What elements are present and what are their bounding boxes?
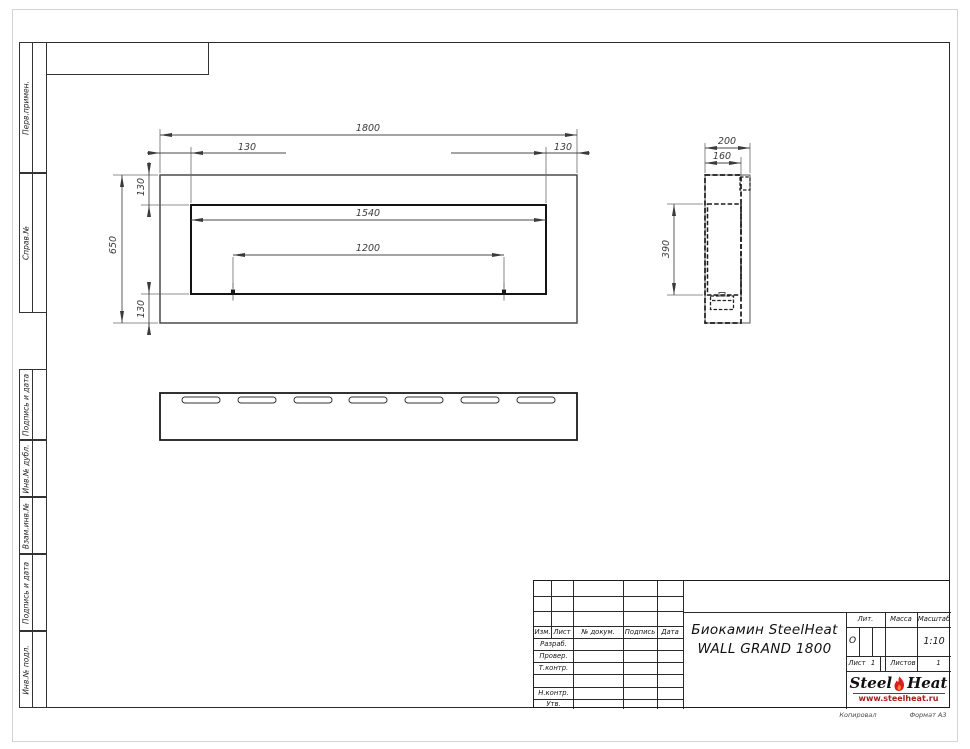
drawing-title-line1: Биокамин SteelHeat [683,621,846,640]
tb-lit-label: Лит. [846,612,885,627]
dim-label-frame-top: 130 [136,178,147,196]
vent-slot [294,397,332,403]
tb-row-utv: Утв. [534,699,573,709]
vent-slot [405,397,443,403]
plan-view [160,393,577,440]
tb-line [534,596,683,597]
dim-label-opening-width: 1540 [356,208,380,219]
dim-label-frame-left: 130 [238,142,256,153]
vent-slot [238,397,276,403]
dim-label-frame-right: 130 [554,142,572,153]
tb-line [534,611,683,612]
tb-sheets-label: Листов [880,656,926,671]
tb-line [872,627,873,656]
tb-header-list: Лист [551,626,573,638]
dim-label-burner-length: 1200 [356,243,380,254]
dimension-lines [122,135,750,334]
dim-label-opening-height: 390 [661,240,672,258]
tb-line [657,581,658,709]
dim-label-front-height: 650 [108,236,119,254]
footer-copy-note: Копировал [828,711,888,719]
logo-url: www.steelheat.ru [859,694,939,704]
vent-slot [517,397,555,403]
flame-icon [893,676,906,692]
tb-line [534,674,683,675]
dim-label-body-depth: 160 [713,151,731,162]
tb-lit-value: О [846,627,859,656]
tb-sheet-label: Лист [846,656,868,671]
footer-format-note: Формат А3 [898,711,958,719]
drawing-title: Биокамин SteelHeat WALL GRAND 1800 [683,612,846,709]
tb-row-razrab: Разраб. [534,638,573,650]
tb-header-docnum: № докум. [573,626,623,638]
tb-sheets-value: 1 [926,656,951,671]
logo-steel-text: Steel [850,676,893,691]
tb-line [623,581,624,709]
logo-heat-text: Heat [907,676,947,691]
side-view [705,175,750,323]
tb-header-izm: Изм. [534,626,551,638]
dim-label-frame-bottom: 130 [136,300,147,318]
tb-header-data: Дата [657,626,683,638]
side-burner-block [711,296,734,310]
title-block: Изм. Лист № докум. Подпись Дата Разраб. … [533,580,950,708]
dim-label-front-width: 1800 [356,123,380,134]
logo-wordmark: Steel Heat [850,676,948,692]
drawing-title-line2: WALL GRAND 1800 [683,640,846,659]
tb-sheet-value: 1 [866,656,880,671]
tb-mass-label: Масса [885,612,917,627]
tb-row-tkontr: Т.контр. [534,662,573,674]
dim-label-depth: 200 [718,136,736,147]
drawing-sheet: Перв.примен. Справ.№ Подпись и дата Инв.… [0,0,970,749]
company-logo: Steel Heat www.steelheat.ru [846,671,951,709]
tb-header-podpis: Подпись [623,626,657,638]
vent-slot [461,397,499,403]
side-firebox-hidden-contour [708,204,742,295]
side-outer-contour [705,175,750,323]
tb-line [859,627,860,656]
tb-row-nkontr: Н.контр. [534,687,573,699]
vent-slot [349,397,387,403]
tb-scale-value: 1:10 [917,627,951,656]
tb-line [573,581,574,709]
tb-row-prover: Провер. [534,650,573,662]
vent-slot [182,397,220,403]
tb-scale-label: Масштаб [917,612,951,627]
